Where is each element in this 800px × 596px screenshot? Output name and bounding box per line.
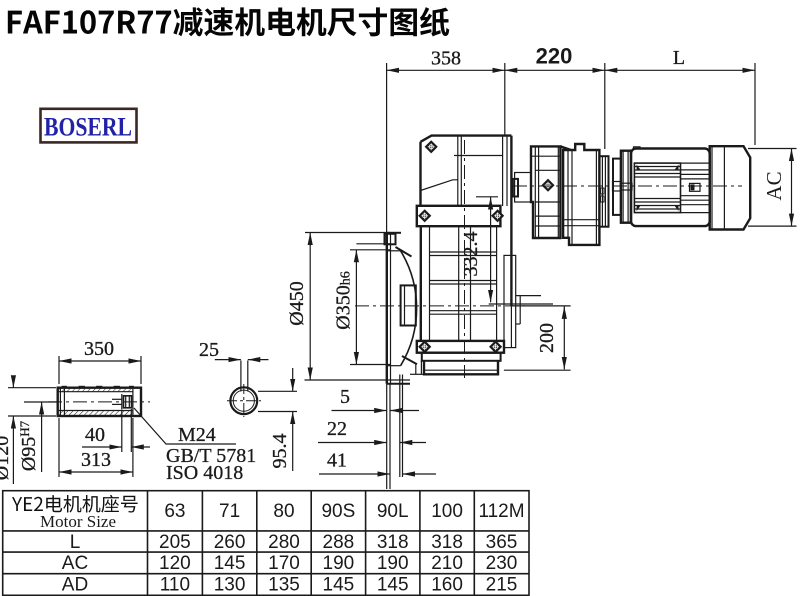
svg-text:230: 230 [486, 553, 518, 574]
svg-text:280: 280 [268, 532, 300, 553]
svg-text:313: 313 [81, 449, 111, 471]
svg-text:200: 200 [536, 323, 558, 353]
svg-text:318: 318 [431, 532, 463, 553]
svg-text:Ø120: Ø120 [0, 436, 13, 480]
svg-text:100: 100 [431, 501, 463, 522]
svg-text:71: 71 [219, 501, 240, 522]
svg-text:145: 145 [214, 553, 246, 574]
svg-text:M24: M24 [178, 424, 216, 446]
svg-text:160: 160 [431, 575, 463, 596]
svg-text:Ø450: Ø450 [286, 281, 308, 325]
svg-text:ISO 4018: ISO 4018 [166, 462, 243, 484]
svg-text:350: 350 [84, 338, 114, 360]
svg-text:40: 40 [85, 424, 105, 446]
svg-text:80: 80 [273, 501, 294, 522]
svg-text:5: 5 [340, 386, 350, 408]
svg-text:365: 365 [486, 532, 518, 553]
svg-text:120: 120 [159, 553, 191, 574]
svg-text:170: 170 [268, 553, 300, 574]
svg-text:358: 358 [431, 48, 461, 70]
svg-text:215: 215 [486, 575, 518, 596]
svg-text:L: L [70, 532, 81, 553]
svg-text:Ø95H7: Ø95H7 [17, 420, 40, 471]
svg-text:BOSERL: BOSERL [44, 113, 132, 142]
svg-text:135: 135 [268, 575, 300, 596]
svg-text:288: 288 [323, 532, 355, 553]
svg-text:AD: AD [62, 575, 88, 596]
svg-text:90S: 90S [321, 501, 355, 522]
svg-text:63: 63 [164, 501, 185, 522]
svg-text:145: 145 [323, 575, 355, 596]
svg-text:260: 260 [214, 532, 246, 553]
svg-text:190: 190 [323, 553, 355, 574]
svg-text:110: 110 [160, 575, 190, 596]
svg-text:210: 210 [431, 553, 463, 574]
svg-text:Motor Size: Motor Size [40, 512, 116, 531]
svg-text:AC: AC [62, 553, 88, 574]
svg-text:95.4: 95.4 [269, 434, 291, 469]
svg-text:Ø350h6: Ø350h6 [333, 271, 355, 329]
svg-text:130: 130 [214, 575, 246, 596]
svg-text:90L: 90L [377, 501, 409, 522]
svg-text:145: 145 [377, 575, 409, 596]
svg-text:318: 318 [377, 532, 409, 553]
svg-text:220: 220 [536, 44, 573, 69]
svg-text:205: 205 [159, 532, 191, 553]
svg-text:L: L [673, 47, 685, 69]
svg-text:41: 41 [327, 450, 347, 472]
svg-text:22: 22 [327, 418, 347, 440]
svg-text:AC: AC [762, 171, 786, 200]
svg-text:112M: 112M [478, 501, 524, 522]
svg-text:25: 25 [199, 339, 219, 361]
svg-text:190: 190 [377, 553, 409, 574]
